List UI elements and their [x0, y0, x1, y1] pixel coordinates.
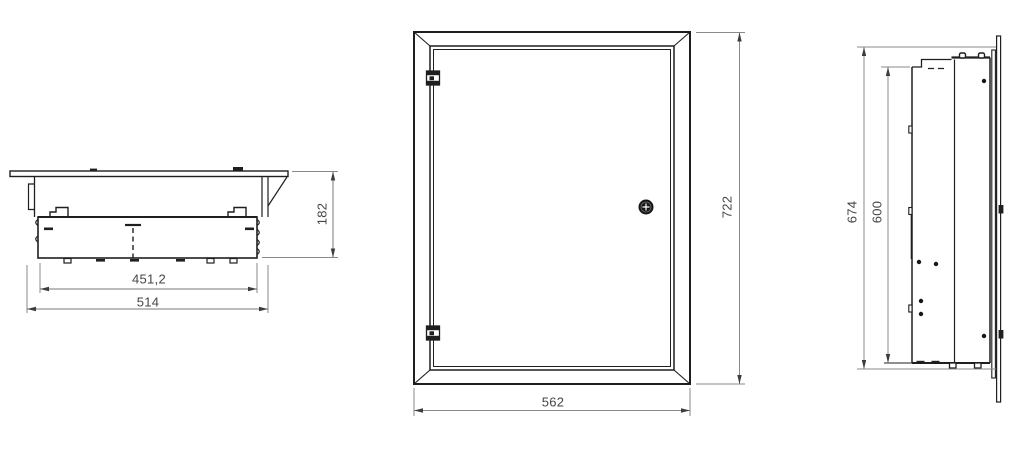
door-lock-icon: [639, 200, 654, 215]
front-view: [414, 32, 745, 416]
dimension-label-top-inner-width: 451,2: [132, 273, 166, 286]
dimension-label-top-body-width: 514: [137, 296, 160, 309]
hinge-side-top: [999, 205, 1004, 214]
enclosure-body: [38, 217, 257, 258]
clip-right: [228, 208, 246, 218]
hinge-side-bottom: [999, 330, 1004, 339]
plate-tab-left: [90, 169, 97, 172]
technical-drawing-canvas: 451,2 514 182 562 722 674 600: [0, 0, 1024, 453]
trim-frame-profile: [997, 36, 1001, 402]
dimension-label-side-plate-height: 600: [871, 201, 884, 224]
dimension-label-side-body-height: 674: [846, 201, 859, 224]
door-hinge-bottom-icon: [427, 326, 440, 340]
door-edge-profile: [992, 50, 996, 378]
side-view-enclosure: [884, 36, 1003, 402]
top-view: [10, 167, 338, 313]
plate-tab-right: [233, 167, 243, 171]
drawing-linework: [0, 0, 1024, 453]
dimension-label-top-depth: 182: [316, 203, 329, 226]
door-hinge-top-icon: [427, 71, 440, 85]
mounting-holes: [917, 79, 986, 338]
dimension-label-front-width: 562: [542, 396, 565, 409]
cabinet-door: [434, 50, 671, 367]
dimension-label-front-height: 722: [721, 196, 734, 219]
trim-plate: [10, 171, 288, 177]
top-view-enclosure: [10, 167, 288, 263]
clip-left: [50, 208, 68, 218]
